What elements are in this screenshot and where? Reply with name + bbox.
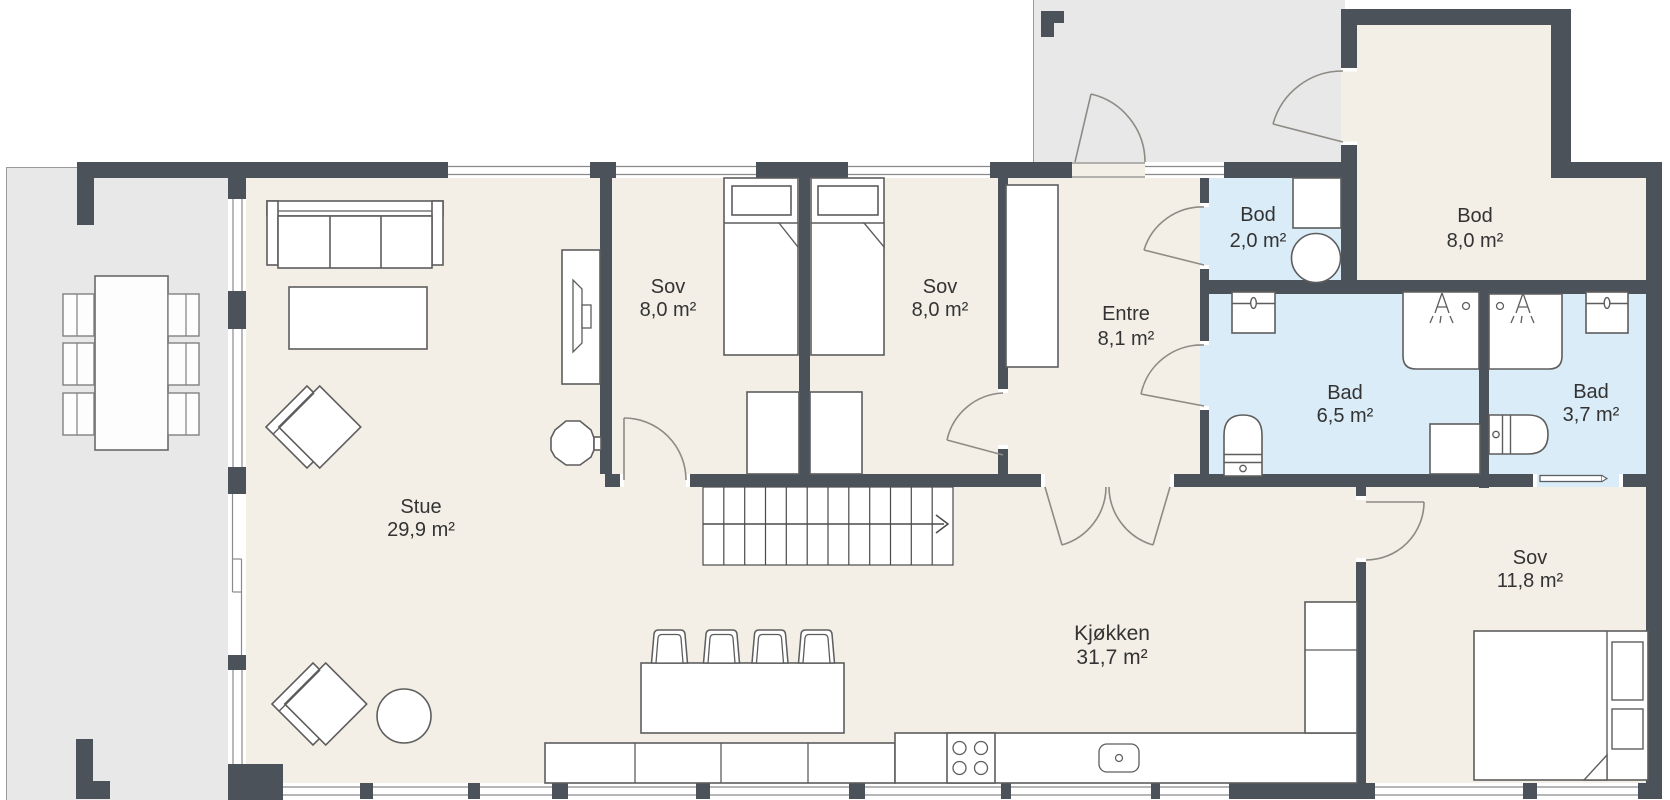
- svg-text:31,7 m²: 31,7 m²: [1076, 646, 1147, 669]
- svg-text:Bad: Bad: [1573, 381, 1609, 403]
- svg-text:29,9 m²: 29,9 m²: [387, 519, 455, 541]
- svg-text:Bod: Bod: [1457, 205, 1493, 227]
- svg-text:11,8 m²: 11,8 m²: [1497, 570, 1564, 592]
- svg-text:3,7 m²: 3,7 m²: [1563, 404, 1620, 426]
- svg-text:6,5 m²: 6,5 m²: [1317, 405, 1374, 427]
- svg-text:Bad: Bad: [1327, 382, 1363, 404]
- svg-text:Sov: Sov: [1513, 547, 1547, 569]
- svg-text:Sov: Sov: [923, 276, 957, 298]
- svg-text:8,0 m²: 8,0 m²: [640, 299, 697, 321]
- svg-text:2,0 m²: 2,0 m²: [1230, 230, 1287, 252]
- svg-text:8,0 m²: 8,0 m²: [912, 299, 969, 321]
- svg-text:8,1 m²: 8,1 m²: [1098, 328, 1155, 350]
- svg-text:Kjøkken: Kjøkken: [1074, 622, 1150, 645]
- svg-text:Entre: Entre: [1102, 303, 1150, 325]
- svg-text:Stue: Stue: [400, 496, 441, 518]
- svg-text:8,0 m²: 8,0 m²: [1447, 230, 1504, 252]
- svg-text:Bod: Bod: [1240, 204, 1276, 226]
- svg-text:Sov: Sov: [651, 276, 685, 298]
